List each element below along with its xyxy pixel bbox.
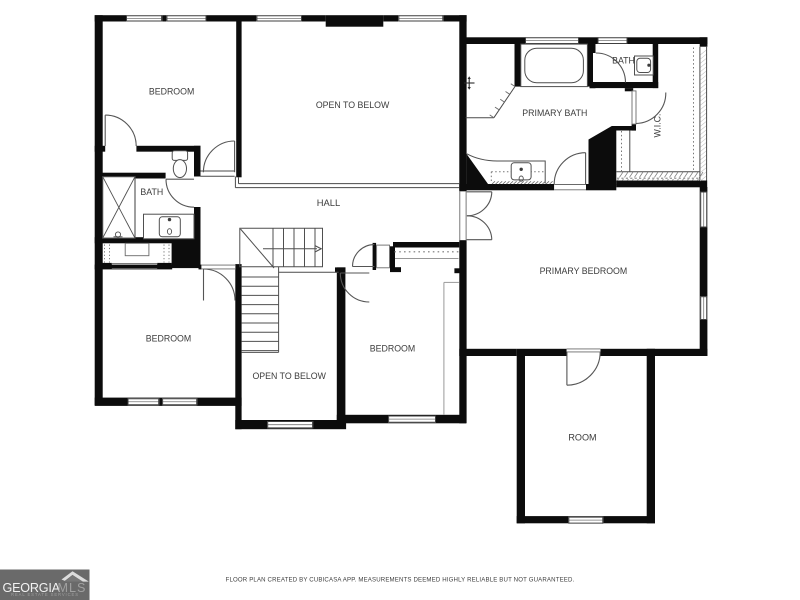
svg-text:PRIMARY BEDROOM: PRIMARY BEDROOM [540,266,628,276]
svg-text:W.I.C.: W.I.C. [653,114,663,138]
svg-text:REAL ESTATE SERVICES: REAL ESTATE SERVICES [11,592,79,597]
svg-text:FLOOR PLAN CREATED BY CUBICASA: FLOOR PLAN CREATED BY CUBICASA APP. MEAS… [226,577,575,584]
svg-text:PRIMARY BATH: PRIMARY BATH [522,108,587,118]
svg-text:BEDROOM: BEDROOM [146,334,191,344]
svg-text:BATH: BATH [140,187,163,197]
svg-text:BEDROOM: BEDROOM [149,87,194,97]
svg-text:BEDROOM: BEDROOM [370,343,415,353]
svg-text:HALL: HALL [317,197,340,208]
svg-text:OPEN TO BELOW: OPEN TO BELOW [316,100,390,110]
svg-text:OPEN TO BELOW: OPEN TO BELOW [252,371,326,381]
svg-text:ROOM: ROOM [568,433,596,443]
svg-text:BATH: BATH [612,55,635,65]
